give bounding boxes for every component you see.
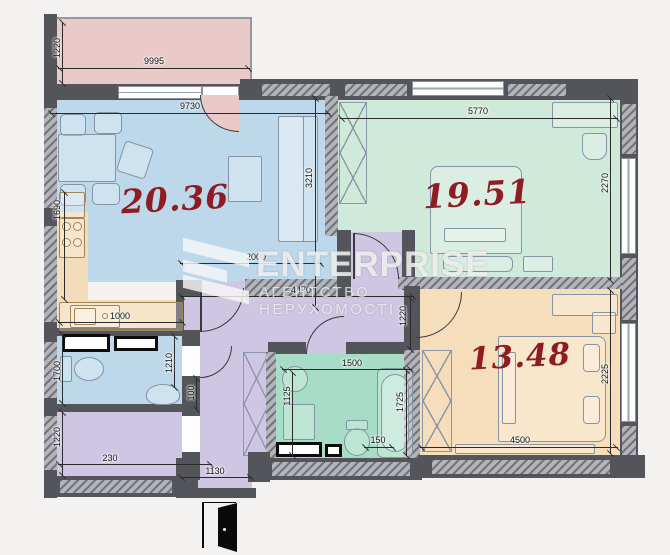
wall-bottom-storage-hatch: [60, 480, 172, 493]
dining-chair: [92, 183, 120, 205]
dim-hall-depth: 1220: [398, 306, 408, 326]
dim-line: [282, 369, 412, 370]
bedroom2-area-label: 13.48: [468, 336, 572, 377]
dim-living-depth: 3210: [304, 168, 314, 188]
wall-right-hatch-3: [622, 426, 636, 456]
bedroom1-bed-fold: [444, 228, 506, 242]
stove-burner: [73, 222, 82, 231]
dim-kitchen-side: 1690: [52, 200, 62, 220]
dining-chair: [94, 112, 122, 134]
wall-bathroom-left: [266, 352, 276, 460]
toilet-bowl: [74, 357, 104, 381]
bath-washer: [283, 404, 315, 440]
dim-line: [58, 68, 250, 69]
dim-bedroom1-depth: 2270: [600, 173, 610, 193]
dim-line: [174, 336, 175, 388]
dim-storage-depth: 1220: [52, 427, 62, 447]
bedroom1-door-leaf: [353, 233, 355, 279]
dim-bath-length: 1725: [395, 392, 405, 412]
living-window: [118, 86, 202, 99]
wall-bedroom1-top-hatch-1: [262, 84, 330, 96]
wall-right-hatch-1: [622, 104, 636, 154]
dim-line: [315, 98, 316, 308]
coffee-table: [228, 156, 262, 202]
floor-plan: 1220 9995 9730 3210 2000 1690 1000 5770 …: [0, 0, 670, 555]
storage-floor: [57, 410, 184, 478]
bedroom2-pillow: [583, 344, 600, 372]
dim-line: [610, 290, 611, 454]
wall-left-hatch-2: [44, 226, 57, 322]
dim-line: [364, 447, 394, 448]
dim-bath-width: 1500: [342, 358, 362, 368]
dim-line: [410, 298, 411, 350]
bath-toilet-bowl: [344, 428, 370, 456]
wall-bedroom1-top-hatch-3: [508, 84, 566, 96]
dim-line: [292, 372, 293, 456]
dim-line: [406, 370, 407, 456]
bedroom1-area-label: 19.51: [422, 172, 532, 217]
dim-entry-width: 1130: [205, 466, 224, 476]
wall-bottom-entry: [194, 488, 256, 498]
entrance-door-frame: [202, 502, 204, 548]
kitchen-cabinet: [59, 192, 85, 218]
wall-bedroom1-top-hatch-2: [345, 84, 407, 96]
wall-hall-green-left: [337, 230, 351, 296]
bath-cabinet: [276, 442, 322, 457]
dim-line: [180, 296, 414, 297]
sofa-seat: [278, 116, 304, 242]
dining-table: [58, 134, 116, 182]
washing-machine: [62, 334, 110, 352]
bedroom2-pillow: [583, 396, 600, 424]
wall-right-hatch-2: [622, 258, 636, 320]
entrance-door-lintel: [202, 502, 236, 503]
sink-faucet: [102, 313, 108, 319]
dim-line: [58, 464, 212, 465]
dim-line: [50, 113, 330, 114]
entrance-door-leaf: [218, 503, 237, 552]
wall-left-hatch-1: [44, 108, 57, 208]
dim-line: [62, 334, 63, 404]
bedroom2-nightstand: [592, 312, 616, 334]
dim-living-width: 9730: [180, 101, 200, 111]
dim-bedroom2-width: 4500: [510, 435, 530, 445]
dining-chair: [60, 114, 86, 136]
living-area-label: 20.36: [120, 177, 230, 222]
living-door-leaf: [200, 288, 202, 332]
dim-bath-gap: 150: [370, 435, 385, 445]
bedroom2-tv-stand: [455, 444, 595, 454]
bedroom1-nightstand: [523, 256, 553, 272]
bedroom1-window-top: [412, 81, 504, 96]
bedroom2-wardrobe: [422, 350, 452, 452]
bedroom1-window-right: [621, 158, 636, 254]
dim-balcony-depth: 1220: [52, 38, 62, 58]
dim-line: [64, 192, 65, 300]
dim-storage-width: 230: [102, 453, 117, 463]
dim-line: [420, 447, 618, 448]
wall-bottom-bedroom2-hatch: [432, 460, 610, 474]
dim-line: [610, 98, 611, 281]
dim-line: [340, 118, 618, 119]
dim-bedroom2-depth: 2225: [600, 364, 610, 384]
wall-living-bedroom1-divider: [325, 96, 338, 236]
dim-line: [58, 322, 184, 323]
storage-door-opening: [182, 416, 200, 452]
wall-bedroom1-bottom: [398, 277, 622, 289]
bedroom1-dresser: [552, 102, 618, 128]
dim-wc-width: 1210: [164, 353, 174, 373]
dim-line: [196, 378, 197, 410]
dim-balcony-width: 9995: [144, 56, 164, 66]
bedroom2-window-right: [621, 323, 636, 422]
dim-bedroom1-width: 5770: [468, 106, 488, 116]
entrance-door-handle: [223, 528, 226, 531]
dim-line: [62, 22, 63, 84]
dim-wall-gap: 100: [186, 385, 196, 400]
dim-bath-depth: 1125: [282, 386, 292, 405]
dim-line: [180, 263, 322, 264]
dim-kitchen-width: 1000: [110, 311, 130, 321]
dim-hall-width: 4470: [291, 285, 311, 295]
dim-living-span: 2000: [246, 252, 266, 262]
stove-burner: [73, 238, 82, 247]
bedroom1-bench: [443, 256, 513, 272]
wc-door-opening: [182, 346, 200, 376]
balcony-floor: [57, 17, 252, 88]
dim-wc-depth: 1700: [52, 361, 62, 381]
bath-cabinet-small: [325, 444, 342, 457]
bedroom1-stool: [582, 133, 607, 160]
wall-wc-storage-divider: [57, 404, 184, 412]
bath-toilet-tank: [346, 420, 368, 430]
wall-bottom-bathroom-hatch: [272, 462, 410, 476]
dim-line: [180, 477, 252, 478]
wc-cabinet: [114, 336, 158, 351]
